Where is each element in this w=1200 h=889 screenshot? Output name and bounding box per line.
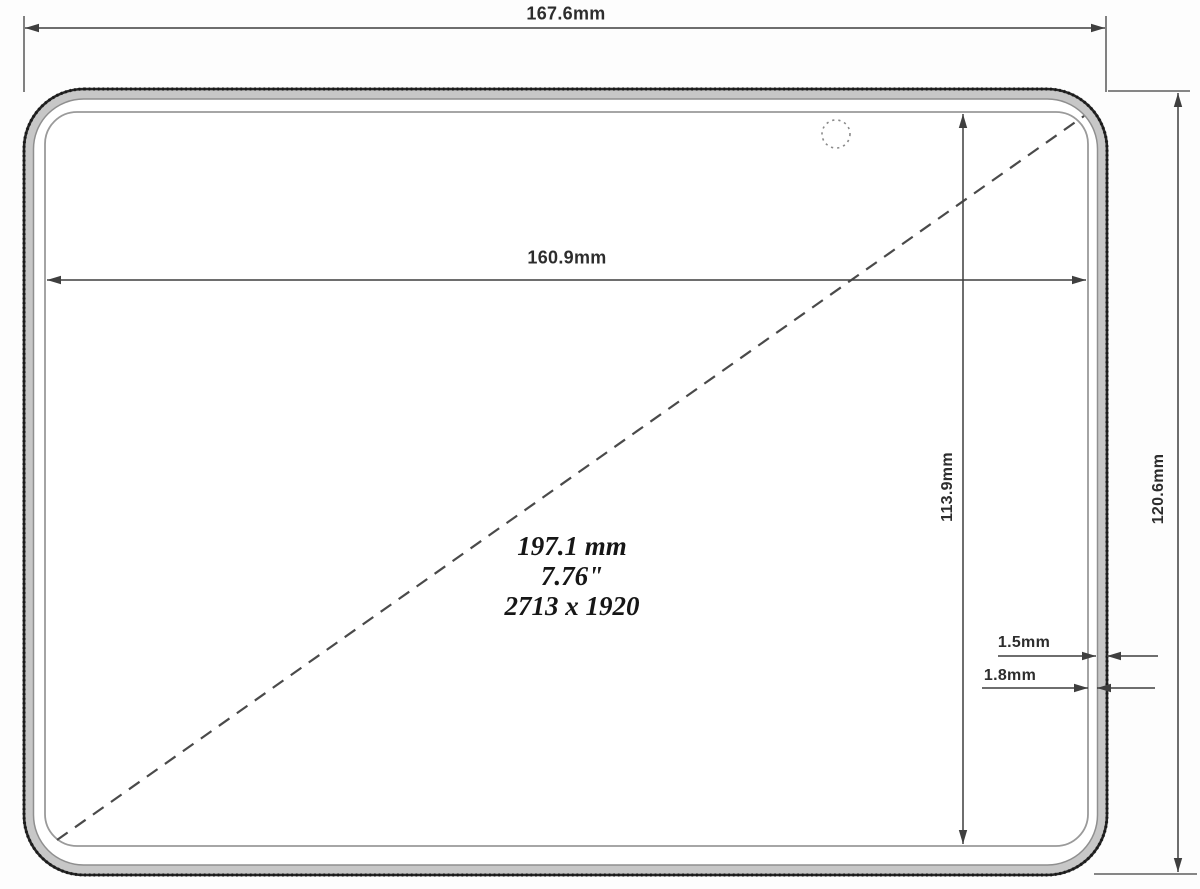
display-height-label: 113.9mm	[939, 452, 957, 522]
diagonal-annotation: 197.1 mm 7.76" 2713 x 1920	[505, 531, 640, 621]
resolution-label: 2713 x 1920	[505, 591, 640, 621]
diagonal-inches-label: 7.76"	[505, 561, 640, 591]
diagonal-mm-label: 197.1 mm	[505, 531, 640, 561]
bezel-gap-label: 1.8mm	[984, 667, 1036, 685]
technical-drawing-canvas: 167.6mm 160.9mm 113.9mm 120.6mm 1.5mm 1.…	[0, 0, 1200, 889]
outer-width-label: 167.6mm	[526, 4, 605, 25]
bezel-wall-label: 1.5mm	[998, 634, 1050, 652]
outer-height-label: 120.6mm	[1150, 454, 1168, 525]
drawing-svg	[0, 0, 1200, 889]
display-edge	[45, 112, 1088, 846]
display-width-label: 160.9mm	[527, 248, 606, 269]
